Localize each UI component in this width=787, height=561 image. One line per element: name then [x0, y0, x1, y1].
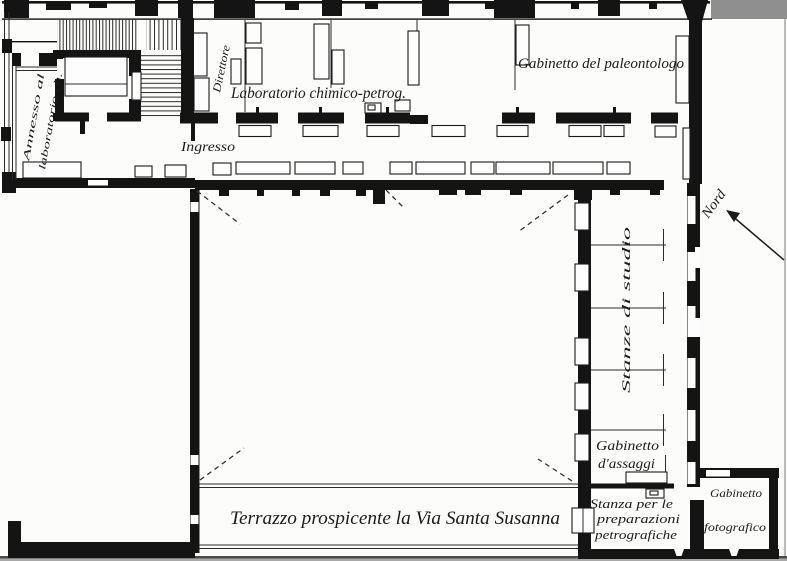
svg-text:Gabinetto del paleontologo: Gabinetto del paleontologo	[518, 56, 684, 72]
svg-text:Terrazzo prospicente la Via Sa: Terrazzo prospicente la Via Santa Susann…	[230, 508, 560, 529]
svg-text:Laboratorio chimico-petrog.: Laboratorio chimico-petrog.	[230, 85, 406, 102]
svg-text:petrografiche: petrografiche	[594, 528, 678, 542]
svg-text:preparazioni: preparazioni	[596, 512, 681, 526]
svg-text:Ingresso: Ingresso	[180, 140, 235, 155]
svg-text:Stanza per le: Stanza per le	[590, 497, 674, 511]
svg-text:Gabinetto: Gabinetto	[710, 486, 762, 500]
svg-text:Gabinetto: Gabinetto	[596, 438, 659, 453]
svg-text:fotografico: fotografico	[704, 520, 766, 534]
svg-text:d'assaggi: d'assaggi	[598, 456, 655, 471]
svg-text:Stanze di studio: Stanze di studio	[621, 226, 633, 393]
